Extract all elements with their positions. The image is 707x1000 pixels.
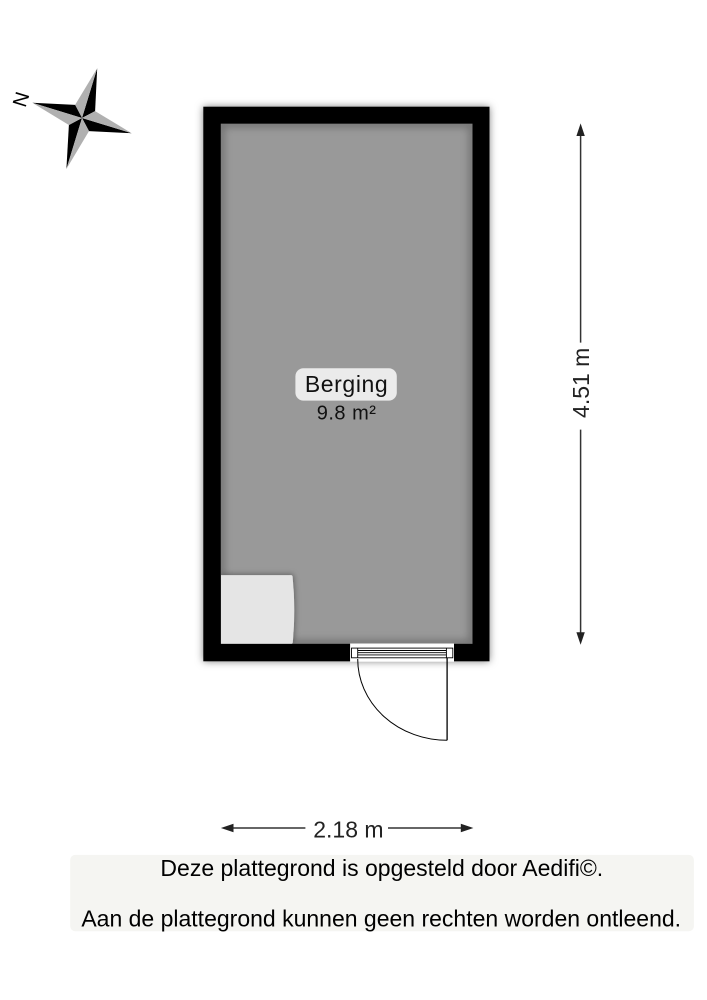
svg-text:Aan de plattegrond kunnen geen: Aan de plattegrond kunnen geen rechten w… — [81, 906, 681, 932]
svg-text:4.51 m: 4.51 m — [568, 348, 594, 418]
svg-text:Deze plattegrond is opgesteld: Deze plattegrond is opgesteld door Aedif… — [160, 855, 603, 881]
svg-text:Berging: Berging — [305, 371, 388, 397]
svg-text:N: N — [9, 89, 34, 109]
svg-text:2.18 m: 2.18 m — [313, 816, 383, 842]
svg-text:9.8 m²: 9.8 m² — [317, 403, 377, 425]
